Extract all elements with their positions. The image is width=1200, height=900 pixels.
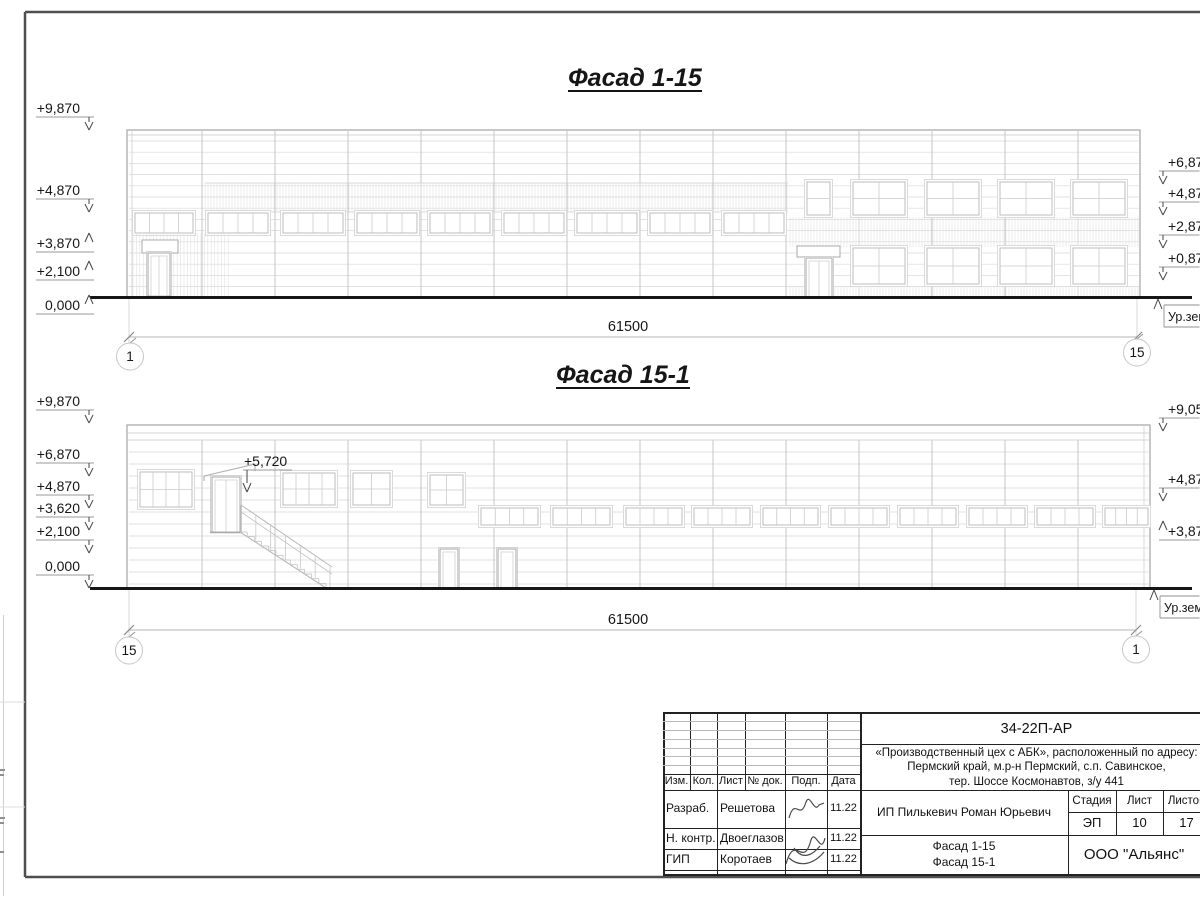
- axis-label-f2-right: 1: [1132, 642, 1140, 657]
- axis-label-f1-right: 15: [1129, 345, 1144, 360]
- svg-text:+6,870: +6,870: [1168, 154, 1200, 170]
- svg-text:+9,870: +9,870: [37, 100, 80, 116]
- stamp-date: 11.22: [827, 790, 860, 828]
- elevation-mark: +3,870: [36, 233, 94, 252]
- stamp-grid-line: [663, 756, 860, 757]
- elevation-mark: +9,050: [1159, 401, 1200, 431]
- facade2-title: Фасад 15-1: [556, 361, 690, 389]
- svg-text:+0,870: +0,870: [1168, 250, 1200, 266]
- svg-text:+2,100: +2,100: [37, 523, 80, 539]
- stamp-header-kol: Кол.: [690, 774, 717, 790]
- stamp-doc-number: 34-22П-АР: [860, 714, 1200, 744]
- elevation-mark: +0,870: [1159, 250, 1200, 280]
- title-block: Изм. Кол. Лист № док. Подп. Дата Разраб.…: [663, 712, 1200, 876]
- elevation-mark: +4,870: [36, 182, 94, 212]
- elevation-mark: +6,870: [1159, 154, 1200, 184]
- elevation-mark: +3,870: [1159, 521, 1200, 540]
- elevation-mark: 0,000: [36, 295, 94, 314]
- svg-text:0,000: 0,000: [45, 558, 80, 574]
- stamp-company: ООО "Альянс": [1068, 835, 1200, 874]
- svg-text:+4,870: +4,870: [1168, 185, 1200, 201]
- svg-text:+4,870: +4,870: [37, 182, 80, 198]
- stamp-sheet-label: Лист: [1116, 790, 1163, 812]
- elevation-mark: +6,870: [36, 446, 94, 476]
- stamp-date: 11.22: [827, 849, 860, 870]
- svg-text:+3,620: +3,620: [37, 500, 80, 516]
- stamp-sheets-total: 17: [1163, 812, 1200, 835]
- svg-text:+3,870: +3,870: [1168, 523, 1200, 539]
- elevation-mark: +2,100: [36, 523, 94, 553]
- svg-text:+4,870: +4,870: [1168, 471, 1200, 487]
- stamp-stage-value: ЭП: [1068, 812, 1116, 835]
- stamp-grid-line: [663, 765, 860, 766]
- stamp-sheets-label: Листов: [1163, 790, 1200, 812]
- svg-text:+4,870: +4,870: [37, 478, 80, 494]
- svg-text:+9,050: +9,050: [1168, 401, 1200, 417]
- stamp-header-list: Лист: [717, 774, 745, 790]
- stamp-client: ИП Пилькевич Роман Юрьевич: [860, 790, 1068, 835]
- stamp-date: 11.22: [827, 828, 860, 849]
- stamp-stage-label: Стадия: [1068, 790, 1116, 812]
- project-name-line: Пермский край, м.р-н Пермский, с.п. Сави…: [907, 760, 1165, 775]
- signature: [782, 826, 828, 872]
- stamp-header-doc: № док.: [745, 774, 785, 790]
- stamp-name: Коротаев: [720, 849, 786, 870]
- facade1-title: Фасад 1-15: [568, 64, 703, 92]
- elevation-mark: +9,870: [36, 100, 94, 130]
- elevation-mark: 0,000: [36, 558, 94, 588]
- facade2-total-dimension: 61500: [608, 612, 648, 628]
- project-name-line: тер. Шоссе Космонавтов, з/у 441: [949, 775, 1124, 790]
- stamp-header-izm: Изм.: [663, 774, 690, 790]
- elevation-mark: +4,870: [1159, 185, 1200, 215]
- stamp-role: Н. контр.: [666, 828, 718, 849]
- facade1-ground-level-label: Ур.земли: [1168, 310, 1200, 324]
- svg-text:+3,870: +3,870: [37, 235, 80, 251]
- stamp-name: Двоеглазов: [720, 828, 786, 849]
- stamp-grid-line: [663, 870, 860, 871]
- stamp-drawing-title: Фасад 1-15 Фасад 15-1: [860, 835, 1068, 874]
- svg-text:+6,870: +6,870: [37, 446, 80, 462]
- stamp-grid-line: [663, 739, 860, 740]
- stamp-grid-line: [717, 712, 718, 876]
- facade2-ground-level-label: Ур.земли: [1164, 601, 1200, 615]
- stamp-grid-line: [663, 721, 860, 722]
- stamp-role: Разраб.: [666, 790, 716, 828]
- stamp-grid-line: [663, 730, 860, 731]
- stamp-project-name: «Производственный цех с АБК», расположен…: [863, 745, 1200, 790]
- stamp-role: ГИП: [666, 849, 716, 870]
- elevation-mark: +4,870: [1159, 471, 1200, 501]
- facade1-total-dimension: 61500: [608, 319, 648, 335]
- project-name-line: «Производственный цех с АБК», расположен…: [875, 746, 1197, 761]
- stamp-sheet-number: 10: [1116, 812, 1163, 835]
- stamp-border-line: [663, 874, 1200, 876]
- stair-elevation-mark: +5,720: [244, 453, 287, 469]
- stamp-border-line: [663, 712, 665, 876]
- svg-text:0,000: 0,000: [45, 297, 80, 313]
- signature: [786, 792, 826, 826]
- drawing-sheet: +9,870+4,870+3,870+2,1000,000+6,870+4,87…: [0, 0, 1200, 900]
- stamp-grid-line: [663, 748, 860, 749]
- stamp-name: Решетова: [720, 790, 784, 828]
- elevation-mark: +2,870: [1159, 218, 1200, 248]
- drawing-title-line: Фасад 15-1: [933, 855, 996, 870]
- axis-label-f2-left: 15: [121, 643, 136, 658]
- elevation-mark: +2,100: [36, 261, 94, 280]
- stamp-header-podp: Подп.: [785, 774, 827, 790]
- svg-text:+2,870: +2,870: [1168, 218, 1200, 234]
- stamp-header-data: Дата: [827, 774, 860, 790]
- svg-text:+9,870: +9,870: [37, 393, 80, 409]
- elevation-mark: +9,870: [36, 393, 94, 423]
- svg-text:+2,100: +2,100: [37, 263, 80, 279]
- axis-label-f1-left: 1: [126, 349, 134, 364]
- drawing-title-line: Фасад 1-15: [933, 839, 996, 854]
